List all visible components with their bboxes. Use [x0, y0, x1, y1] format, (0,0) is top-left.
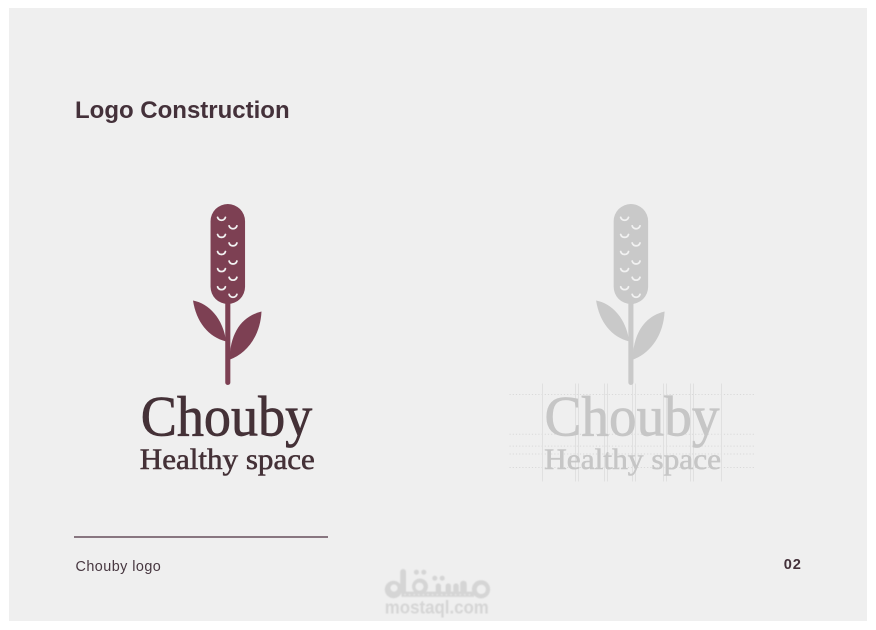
- svg-text:Healthy space: Healthy space: [544, 443, 721, 476]
- svg-text:Chouby: Chouby: [141, 386, 313, 449]
- svg-text:Chouby: Chouby: [545, 386, 720, 449]
- svg-text:Healthy space: Healthy space: [140, 443, 315, 476]
- svg-text:mostaql.com: mostaql.com: [385, 596, 489, 617]
